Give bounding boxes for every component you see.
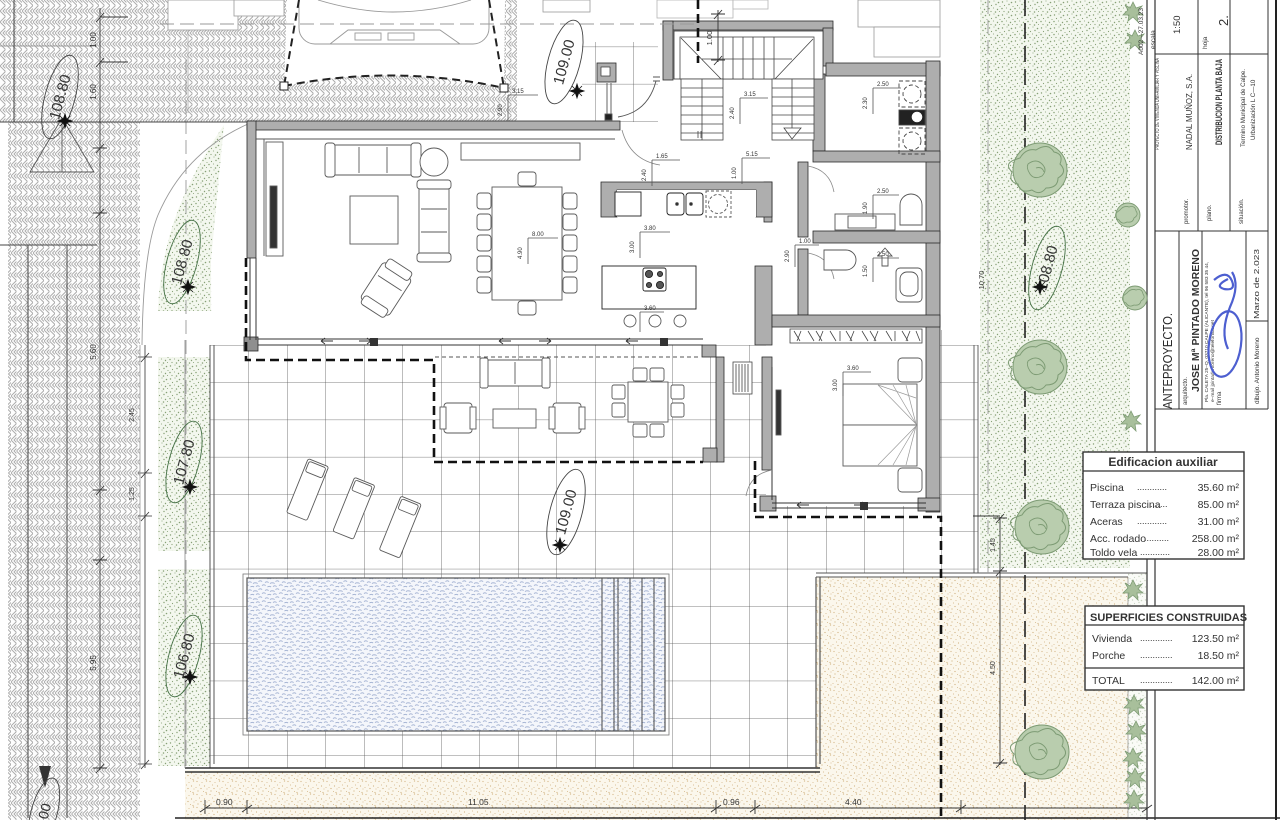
svg-text:Porche: Porche [1092,650,1125,662]
svg-text:0.96: 0.96 [723,797,740,807]
svg-text:Urbanización L C—10: Urbanización L C—10 [1250,79,1257,140]
svg-text:5.95: 5.95 [89,655,98,671]
svg-text:11.05: 11.05 [468,797,489,807]
svg-text:1.00: 1.00 [705,31,714,46]
svg-text:2.50: 2.50 [877,82,889,88]
svg-text:35.60 m²: 35.60 m² [1198,482,1240,494]
svg-text:DISTRIBUCION PLANTA BAJA: DISTRIBUCION PLANTA BAJA [1214,59,1225,145]
svg-text:1.90: 1.90 [863,202,869,214]
svg-text:............: ............ [1140,547,1170,557]
svg-text:.............: ............. [1140,633,1173,643]
svg-text:Pla. CALETA 25–Q, 03710 CALPE: Pla. CALETA 25–Q, 03710 CALPE (ALICANTE)… [1204,262,1210,402]
svg-text:Aceras: Aceras [1090,516,1123,528]
svg-text:109.00: 109.00 [550,38,578,87]
svg-text:situación.: situación. [1239,198,1245,224]
svg-text:1.00: 1.00 [89,32,98,48]
svg-text:123.50 m²: 123.50 m² [1192,633,1240,645]
svg-text:2.40: 2.40 [642,169,648,181]
svg-text:31.00 m²: 31.00 m² [1198,516,1240,528]
svg-text:2.30: 2.30 [863,97,869,109]
svg-text:3.15: 3.15 [744,92,756,98]
svg-text:Termino Municipal de Calpe.: Termino Municipal de Calpe. [1240,69,1247,147]
svg-text:4.90: 4.90 [518,247,524,259]
svg-text:142.00 m²: 142.00 m² [1192,675,1240,687]
svg-text:18.50 m²: 18.50 m² [1198,650,1240,662]
svg-text:............: ............ [1137,516,1167,526]
svg-text:Piscina: Piscina [1090,482,1124,494]
svg-text:PROYECTO DE VIVIENDA UNIFAMILI: PROYECTO DE VIVIENDA UNIFAMILIAR Y PISCI… [1155,58,1161,150]
svg-text:3.00: 3.00 [630,241,636,253]
svg-text:8.00: 8.00 [532,232,544,238]
svg-text:promotor.: promotor. [1184,198,1190,224]
svg-text:1.25: 1.25 [129,487,136,501]
svg-text:1:50: 1:50 [1172,16,1183,35]
svg-text:firma: firma [1217,391,1223,405]
svg-text:hoja: hoja [1202,36,1209,49]
svg-text:3.80: 3.80 [644,226,656,232]
svg-text:3.60: 3.60 [847,366,859,372]
svg-text:2.: 2. [1216,15,1231,26]
svg-text:3.15: 3.15 [512,89,524,95]
svg-text:1.00: 1.00 [732,167,738,179]
svg-text:3.00: 3.00 [833,379,839,391]
svg-text:2.50: 2.50 [877,189,889,195]
svg-text:.............: ............. [1140,675,1173,685]
svg-text:Marzo de 2.023: Marzo de 2.023 [1252,249,1261,319]
svg-text:28.00 m²: 28.00 m² [1198,547,1240,559]
svg-text:1.65: 1.65 [656,154,668,160]
svg-text:plano.: plano. [1207,204,1213,221]
svg-text:2.50: 2.50 [877,252,889,258]
svg-text:.......: ....... [1150,499,1168,509]
svg-text:dibujo. Antonio Moreno: dibujo. Antonio Moreno [1254,337,1261,404]
svg-text:2.40: 2.40 [730,107,736,119]
svg-text:NADAL MUÑOZ, S.A.: NADAL MUÑOZ, S.A. [1185,74,1194,150]
svg-text:0.90: 0.90 [216,797,233,807]
svg-text:..........: .......... [1144,533,1169,543]
svg-text:4.50: 4.50 [990,661,997,675]
svg-text:Toldo vela: Toldo vela [1090,547,1137,559]
svg-text:............: ............ [1137,482,1167,492]
svg-text:.............: ............. [1140,650,1173,660]
svg-text:SUPERFICIES CONSTRUIDAS: SUPERFICIES CONSTRUIDAS [1090,612,1247,624]
svg-text:1.50: 1.50 [863,265,869,277]
svg-text:4.40: 4.40 [845,797,862,807]
svg-text:A002—27.03.23: A002—27.03.23 [1138,8,1145,55]
svg-text:Acc. rodado: Acc. rodado [1090,533,1146,545]
svg-text:TOTAL: TOTAL [1092,675,1125,687]
svg-text:escala: escala [1150,30,1157,49]
svg-text:Vivienda: Vivienda [1092,633,1132,645]
svg-text:1.60: 1.60 [89,84,98,100]
svg-text:2.45: 2.45 [129,408,136,422]
svg-text:1.45: 1.45 [990,538,997,552]
svg-text:5.15: 5.15 [746,152,758,158]
svg-text:Edificacion auxiliar: Edificacion auxiliar [1108,455,1218,469]
svg-text:3.60: 3.60 [644,306,656,312]
svg-text:ANTEPROYECTO.: ANTEPROYECTO. [1161,313,1175,409]
svg-text:10.70: 10.70 [977,271,986,290]
svg-text:85.00 m²: 85.00 m² [1198,499,1240,511]
svg-text:258.00 m²: 258.00 m² [1192,533,1240,545]
svg-text:5.60: 5.60 [89,344,98,360]
svg-text:2.90: 2.90 [785,250,791,262]
svg-text:JOSE Mª PINTADO MORENO: JOSE Mª PINTADO MORENO [1191,249,1202,392]
svg-text:1.00: 1.00 [799,239,811,245]
svg-text:arquitecto.: arquitecto. [1183,377,1189,405]
svg-text:2.90: 2.90 [498,104,504,116]
